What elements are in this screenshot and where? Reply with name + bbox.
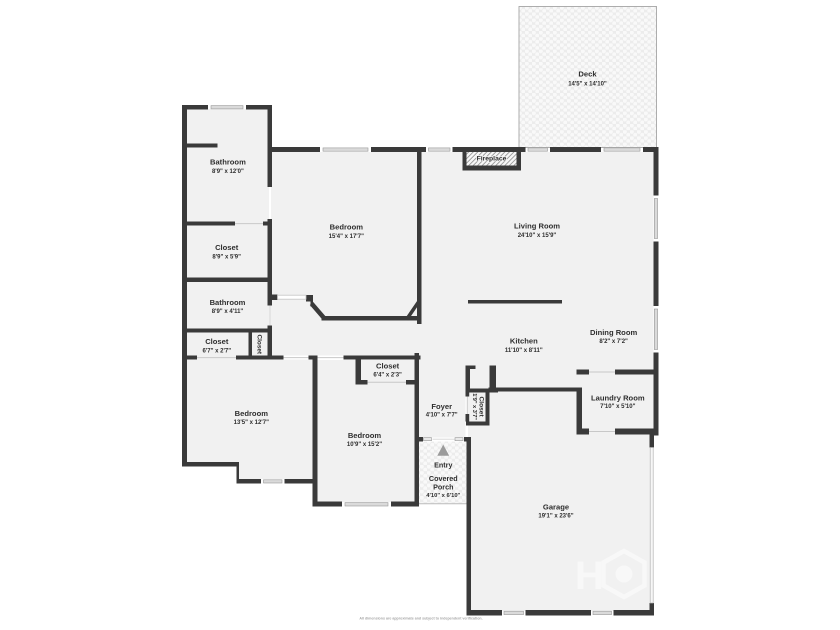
- svg-text:6'7" x 2'7": 6'7" x 2'7": [203, 348, 232, 354]
- svg-text:Entry: Entry: [434, 460, 452, 469]
- svg-text:6'4" x 2'3": 6'4" x 2'3": [373, 373, 402, 379]
- svg-text:Garage: Garage: [543, 503, 569, 512]
- svg-text:8'9" x 12'0": 8'9" x 12'0": [212, 169, 244, 175]
- svg-text:Fireplace: Fireplace: [477, 155, 507, 162]
- svg-text:H: H: [575, 554, 604, 598]
- svg-text:11'10" x 8'11": 11'10" x 8'11": [505, 348, 543, 354]
- svg-text:4'10" x 7'7": 4'10" x 7'7": [426, 413, 458, 419]
- svg-text:13'5" x 12'7": 13'5" x 12'7": [234, 420, 269, 426]
- svg-text:19'1" x 23'6": 19'1" x 23'6": [538, 514, 573, 520]
- svg-text:1'9" x 3'7": 1'9" x 3'7": [471, 393, 477, 420]
- svg-text:Kitchen: Kitchen: [510, 337, 538, 346]
- svg-text:4'10" x 6'10": 4'10" x 6'10": [426, 493, 460, 499]
- svg-text:10'9" x 15'2": 10'9" x 15'2": [347, 442, 382, 448]
- svg-text:Closet: Closet: [256, 335, 263, 355]
- svg-text:Foyer: Foyer: [431, 402, 452, 411]
- svg-text:Bedroom: Bedroom: [348, 431, 382, 440]
- svg-text:Closet: Closet: [215, 243, 239, 252]
- svg-text:7'10" x 5'10": 7'10" x 5'10": [600, 404, 635, 410]
- svg-text:All dimensions are approximate: All dimensions are approximate and subje…: [359, 617, 482, 621]
- svg-text:Porch: Porch: [433, 483, 453, 492]
- svg-text:Living Room: Living Room: [514, 222, 560, 231]
- svg-text:15'4" x 17'7": 15'4" x 17'7": [329, 234, 364, 240]
- svg-text:Bathroom: Bathroom: [210, 298, 246, 307]
- svg-text:8'2" x 7'2": 8'2" x 7'2": [599, 339, 628, 345]
- svg-text:Closet: Closet: [376, 362, 400, 371]
- svg-text:24'10" x 15'9": 24'10" x 15'9": [518, 233, 557, 239]
- svg-text:Deck: Deck: [578, 70, 597, 79]
- svg-text:Bathroom: Bathroom: [210, 158, 246, 167]
- svg-text:Covered: Covered: [429, 474, 458, 483]
- svg-text:14'5" x 14'10": 14'5" x 14'10": [568, 82, 607, 88]
- svg-text:Dining Room: Dining Room: [590, 328, 637, 337]
- svg-text:8'9" x 4'11": 8'9" x 4'11": [212, 309, 244, 315]
- svg-text:Laundry Room: Laundry Room: [591, 394, 645, 403]
- svg-text:Closet: Closet: [205, 337, 229, 346]
- svg-text:Bedroom: Bedroom: [235, 409, 269, 418]
- svg-text:Bedroom: Bedroom: [330, 223, 364, 232]
- svg-text:8'9" x 5'9": 8'9" x 5'9": [212, 254, 241, 260]
- svg-text:Closet: Closet: [478, 397, 485, 418]
